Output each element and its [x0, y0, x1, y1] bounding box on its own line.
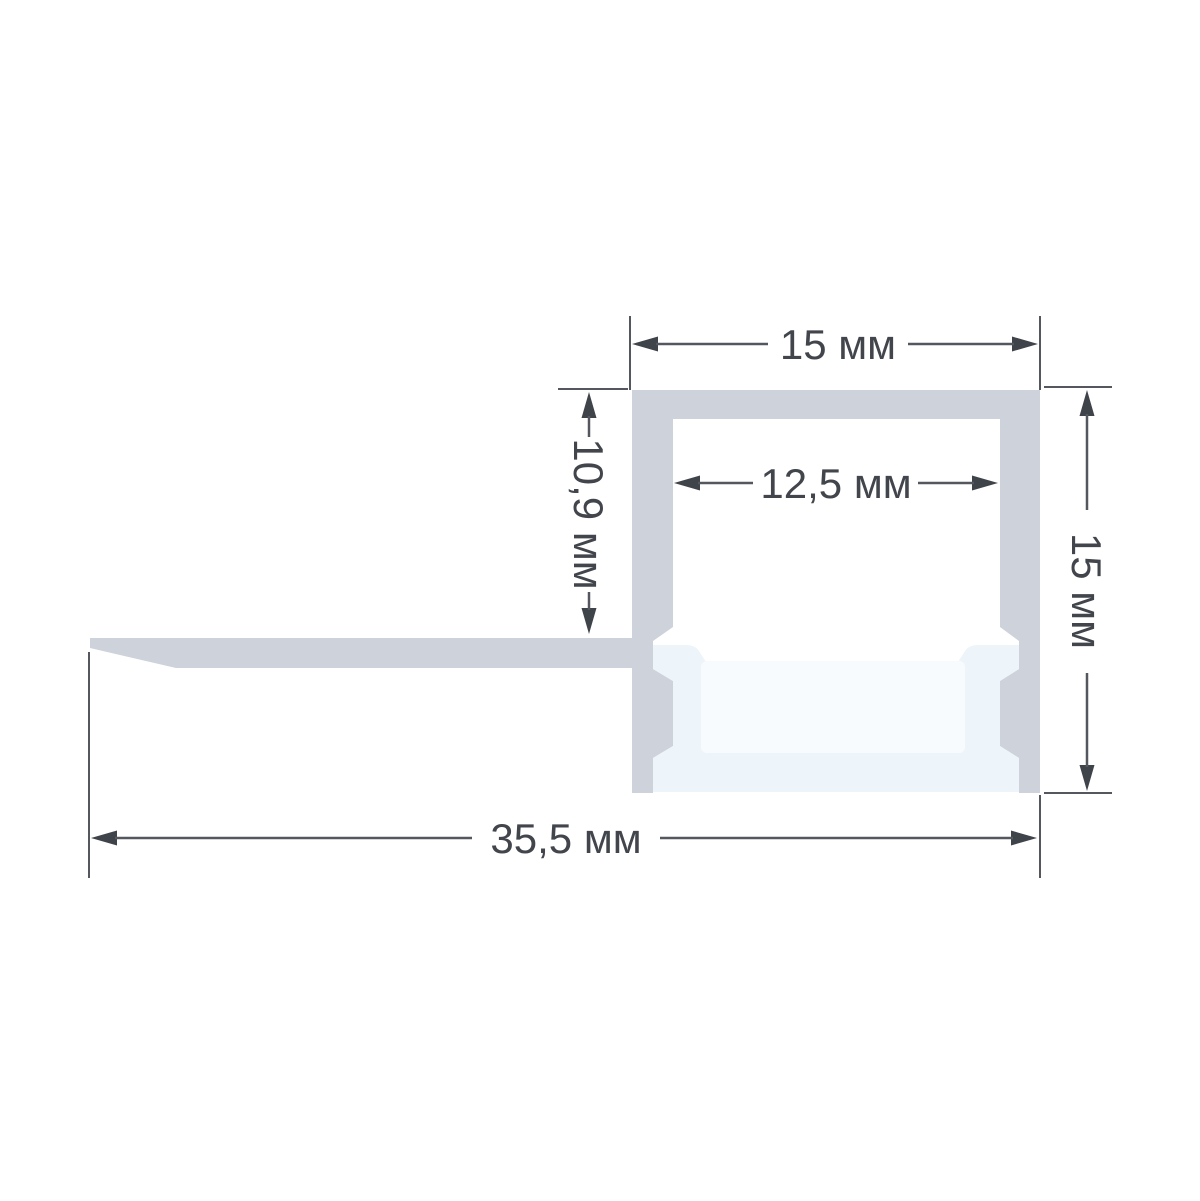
dim-total-width-label: 35,5 мм [490, 815, 641, 862]
diffuser-highlight [701, 661, 965, 753]
dim-side-height: 15 мм [1044, 387, 1112, 793]
arrowhead-down [1080, 765, 1095, 791]
dim-inner-width: 12,5 мм [674, 460, 998, 507]
arrowhead-right [1012, 337, 1038, 352]
drawing-canvas: 15 мм 12,5 мм 10,9 мм 15 мм [0, 0, 1200, 1201]
arrowhead-left [91, 831, 117, 846]
dim-side-height-label: 15 мм [1063, 533, 1110, 649]
arrowhead-down [582, 608, 597, 634]
dim-flange-drop-label: 10,9 мм [565, 438, 612, 589]
dim-flange-drop: 10,9 мм [558, 389, 628, 634]
mounting-flange [90, 638, 632, 668]
dim-top-width-label: 15 мм [780, 321, 896, 368]
arrowhead-right [1011, 831, 1037, 846]
dim-inner-width-label: 12,5 мм [760, 460, 911, 507]
profile-drawing: 15 мм 12,5 мм 10,9 мм 15 мм [0, 0, 1200, 1201]
dim-top-width: 15 мм [630, 316, 1040, 390]
arrowhead-right [972, 476, 998, 491]
arrowhead-up [1080, 390, 1095, 416]
arrowhead-left [632, 337, 658, 352]
arrowhead-up [582, 392, 597, 418]
arrowhead-left [674, 476, 700, 491]
